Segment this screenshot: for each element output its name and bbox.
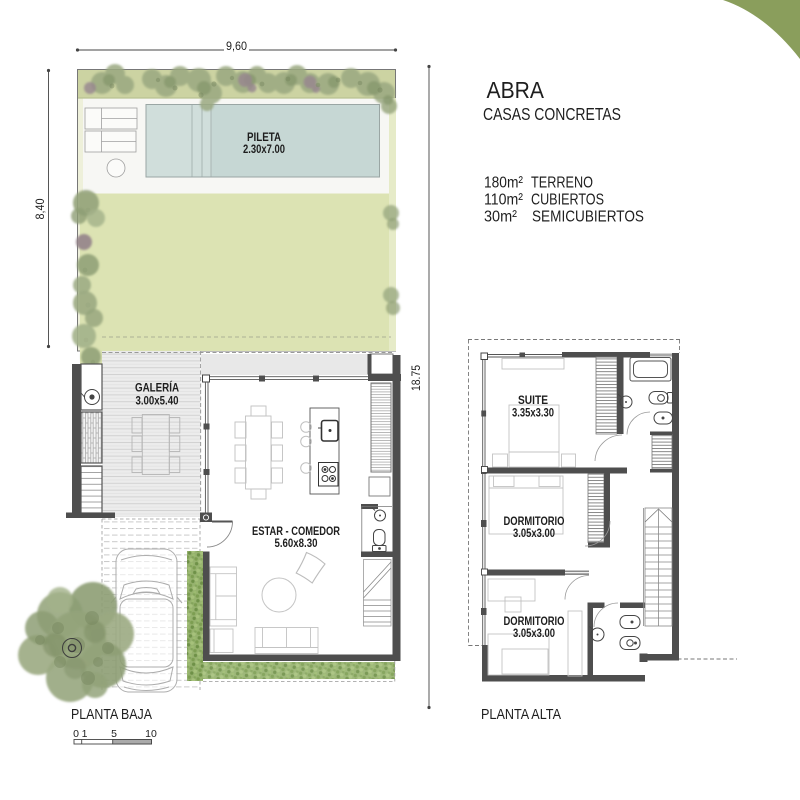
svg-text:110m²: 110m² [484,192,524,209]
svg-text:DORMITORIO: DORMITORIO [504,614,565,628]
svg-text:10: 10 [145,728,157,740]
svg-text:TERRENO: TERRENO [531,175,593,192]
svg-text:3.05x3.00: 3.05x3.00 [513,628,555,640]
svg-text:PLANTA ALTA: PLANTA ALTA [481,706,561,723]
svg-text:SEMICUBIERTOS: SEMICUBIERTOS [532,209,644,226]
svg-text:180m²: 180m² [484,175,524,192]
svg-text:3.05x3.00: 3.05x3.00 [513,528,555,540]
svg-text:ABRA: ABRA [487,77,545,103]
svg-text:PILETA: PILETA [247,130,281,144]
svg-text:CUBIERTOS: CUBIERTOS [531,192,604,209]
svg-text:DORMITORIO: DORMITORIO [504,514,565,528]
svg-text:5: 5 [111,728,117,740]
svg-text:CASAS CONCRETAS: CASAS CONCRETAS [483,104,621,124]
svg-text:1: 1 [82,728,88,740]
svg-text:3.35x3.30: 3.35x3.30 [512,408,554,420]
svg-text:18.75: 18.75 [411,365,423,391]
svg-text:9,60: 9,60 [226,41,247,53]
svg-text:PLANTA BAJA: PLANTA BAJA [71,706,152,723]
svg-text:SUITE: SUITE [518,393,548,407]
svg-text:2.30x7.00: 2.30x7.00 [243,144,285,156]
svg-text:3.00x5.40: 3.00x5.40 [136,396,179,408]
svg-text:ESTAR - COMEDOR: ESTAR - COMEDOR [252,524,340,538]
svg-text:0: 0 [73,728,79,740]
svg-text:8,40: 8,40 [35,199,47,220]
svg-text:5.60x8.30: 5.60x8.30 [275,538,318,550]
svg-text:30m²: 30m² [484,209,518,226]
svg-text:GALERÍA: GALERÍA [135,382,179,395]
